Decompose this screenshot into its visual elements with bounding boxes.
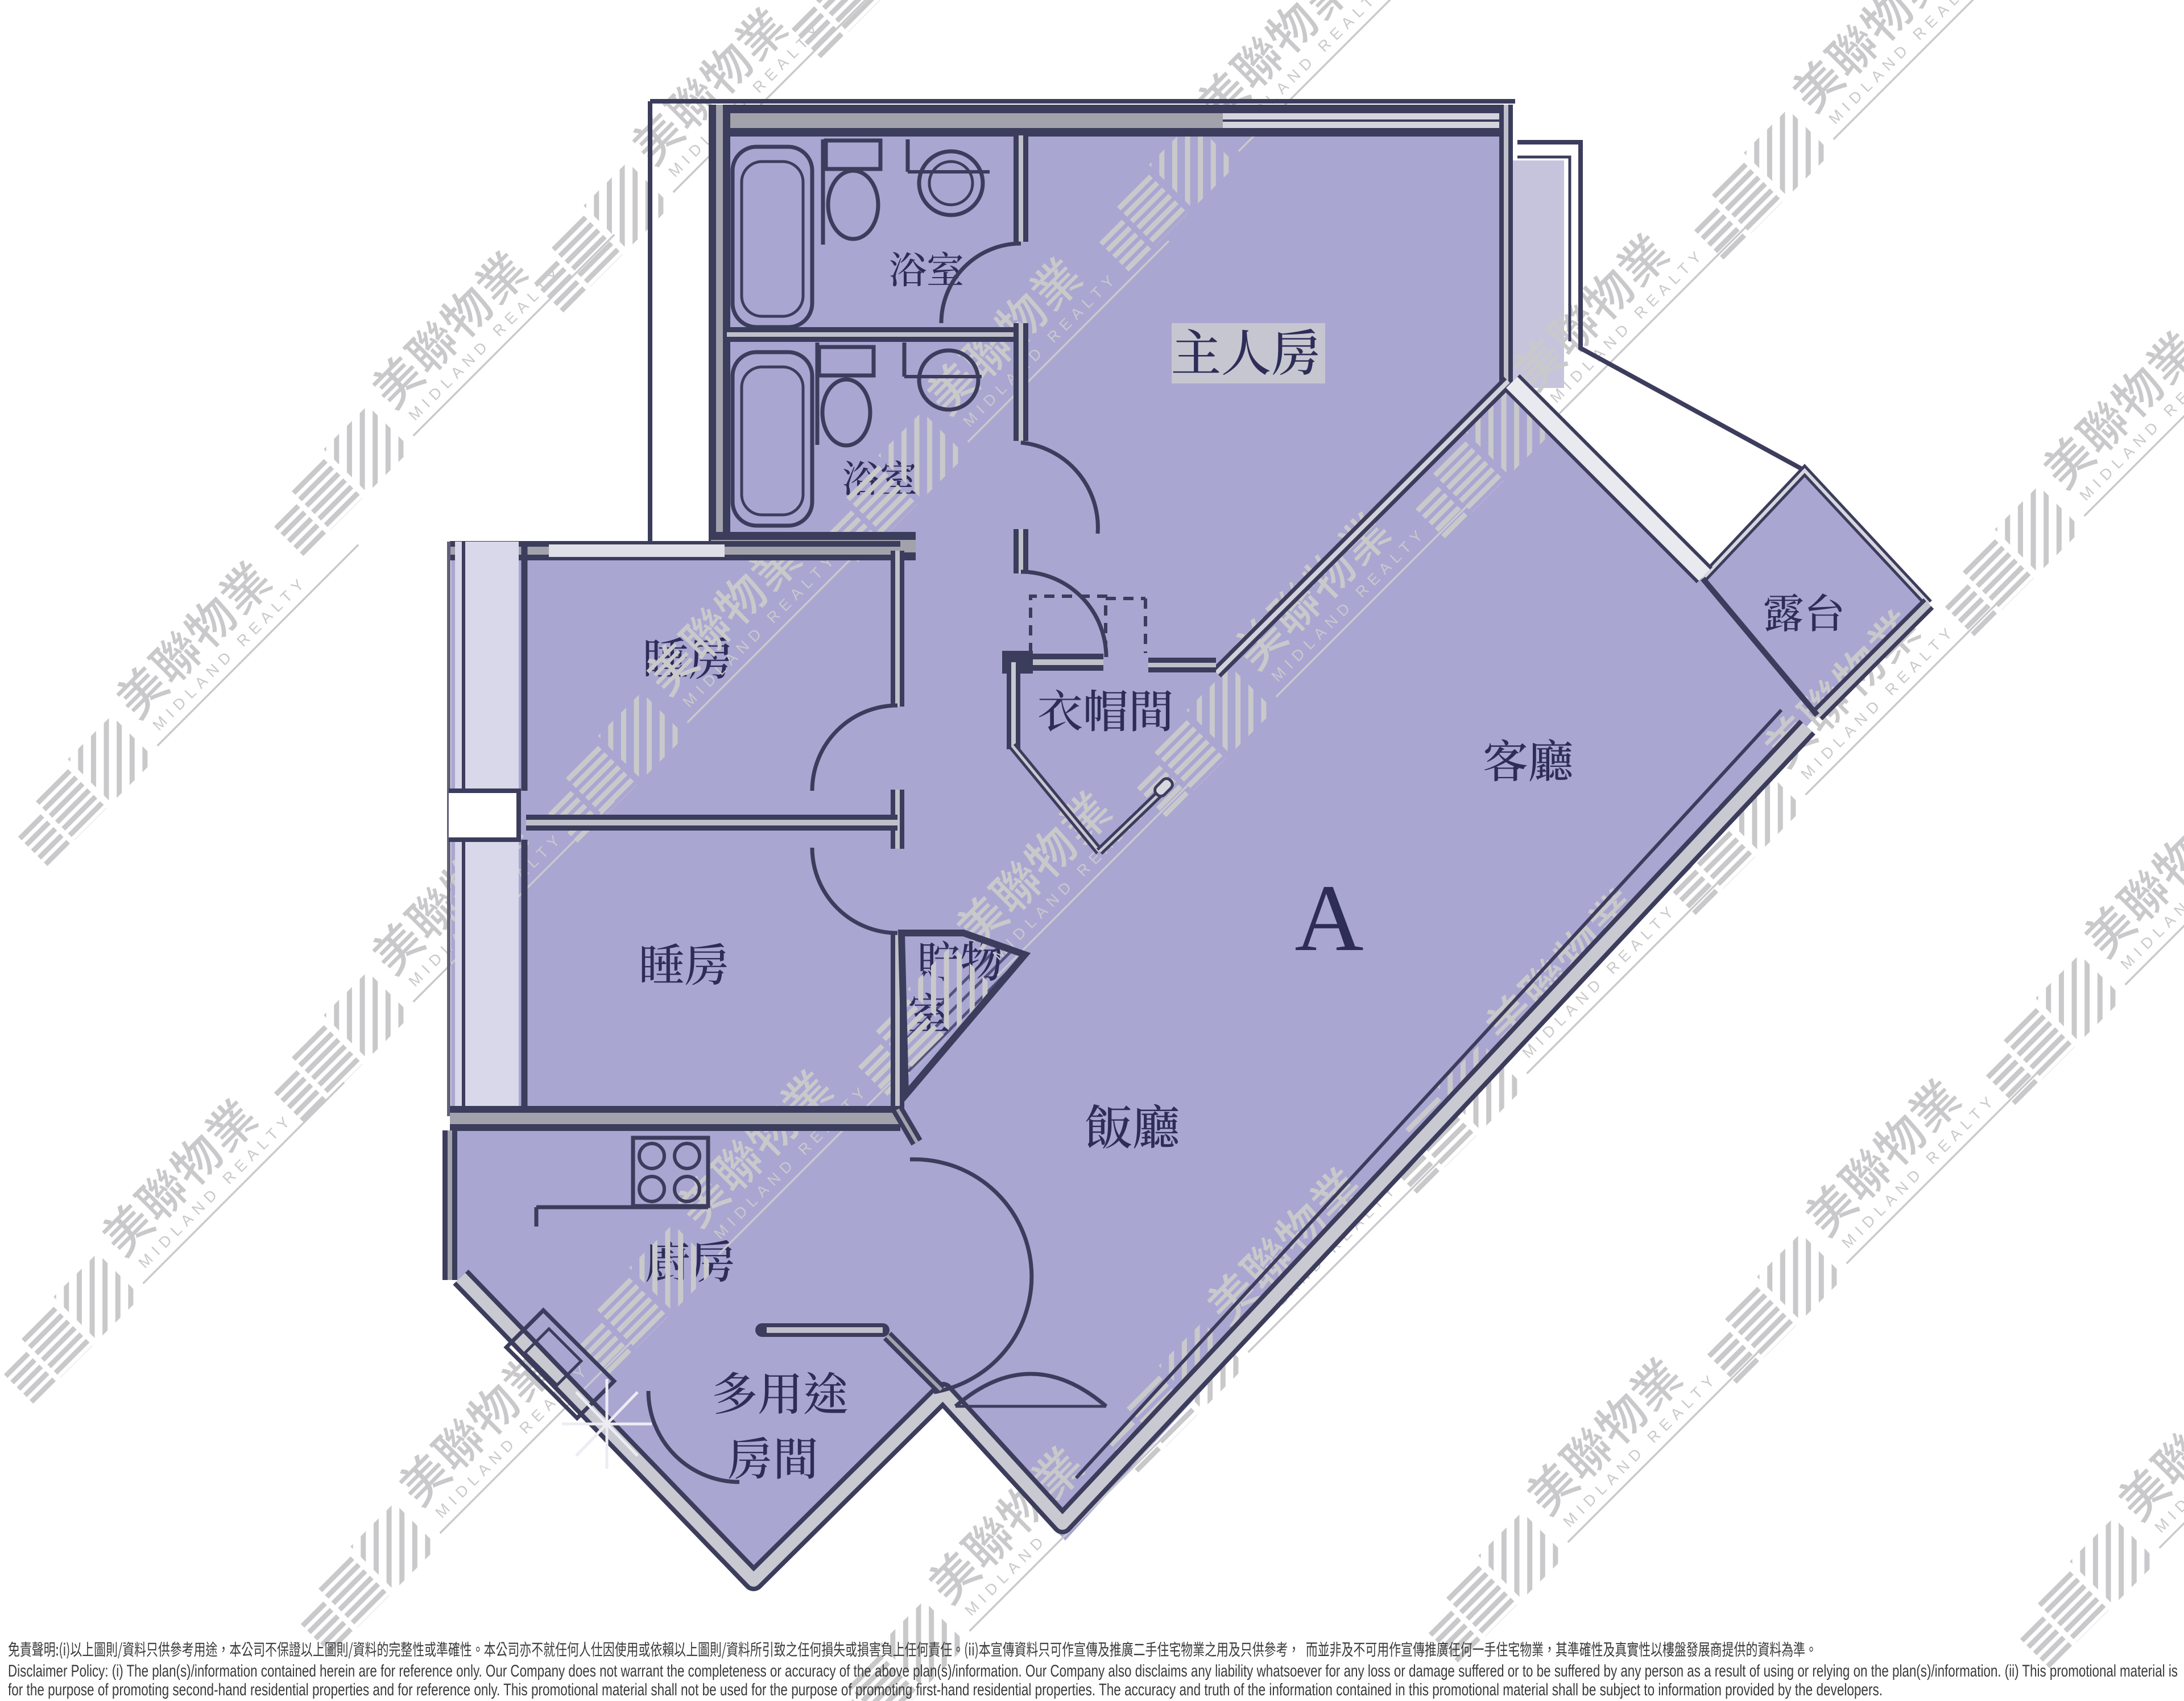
svg-text:Disclaimer Policy: (i) The pla: Disclaimer Policy: (i) The plan(s)/infor… bbox=[8, 1662, 2178, 1681]
svg-text:A: A bbox=[1294, 865, 1363, 971]
svg-text:for the purpose of promoting s: for the purpose of promoting second-hand… bbox=[8, 1681, 1883, 1699]
